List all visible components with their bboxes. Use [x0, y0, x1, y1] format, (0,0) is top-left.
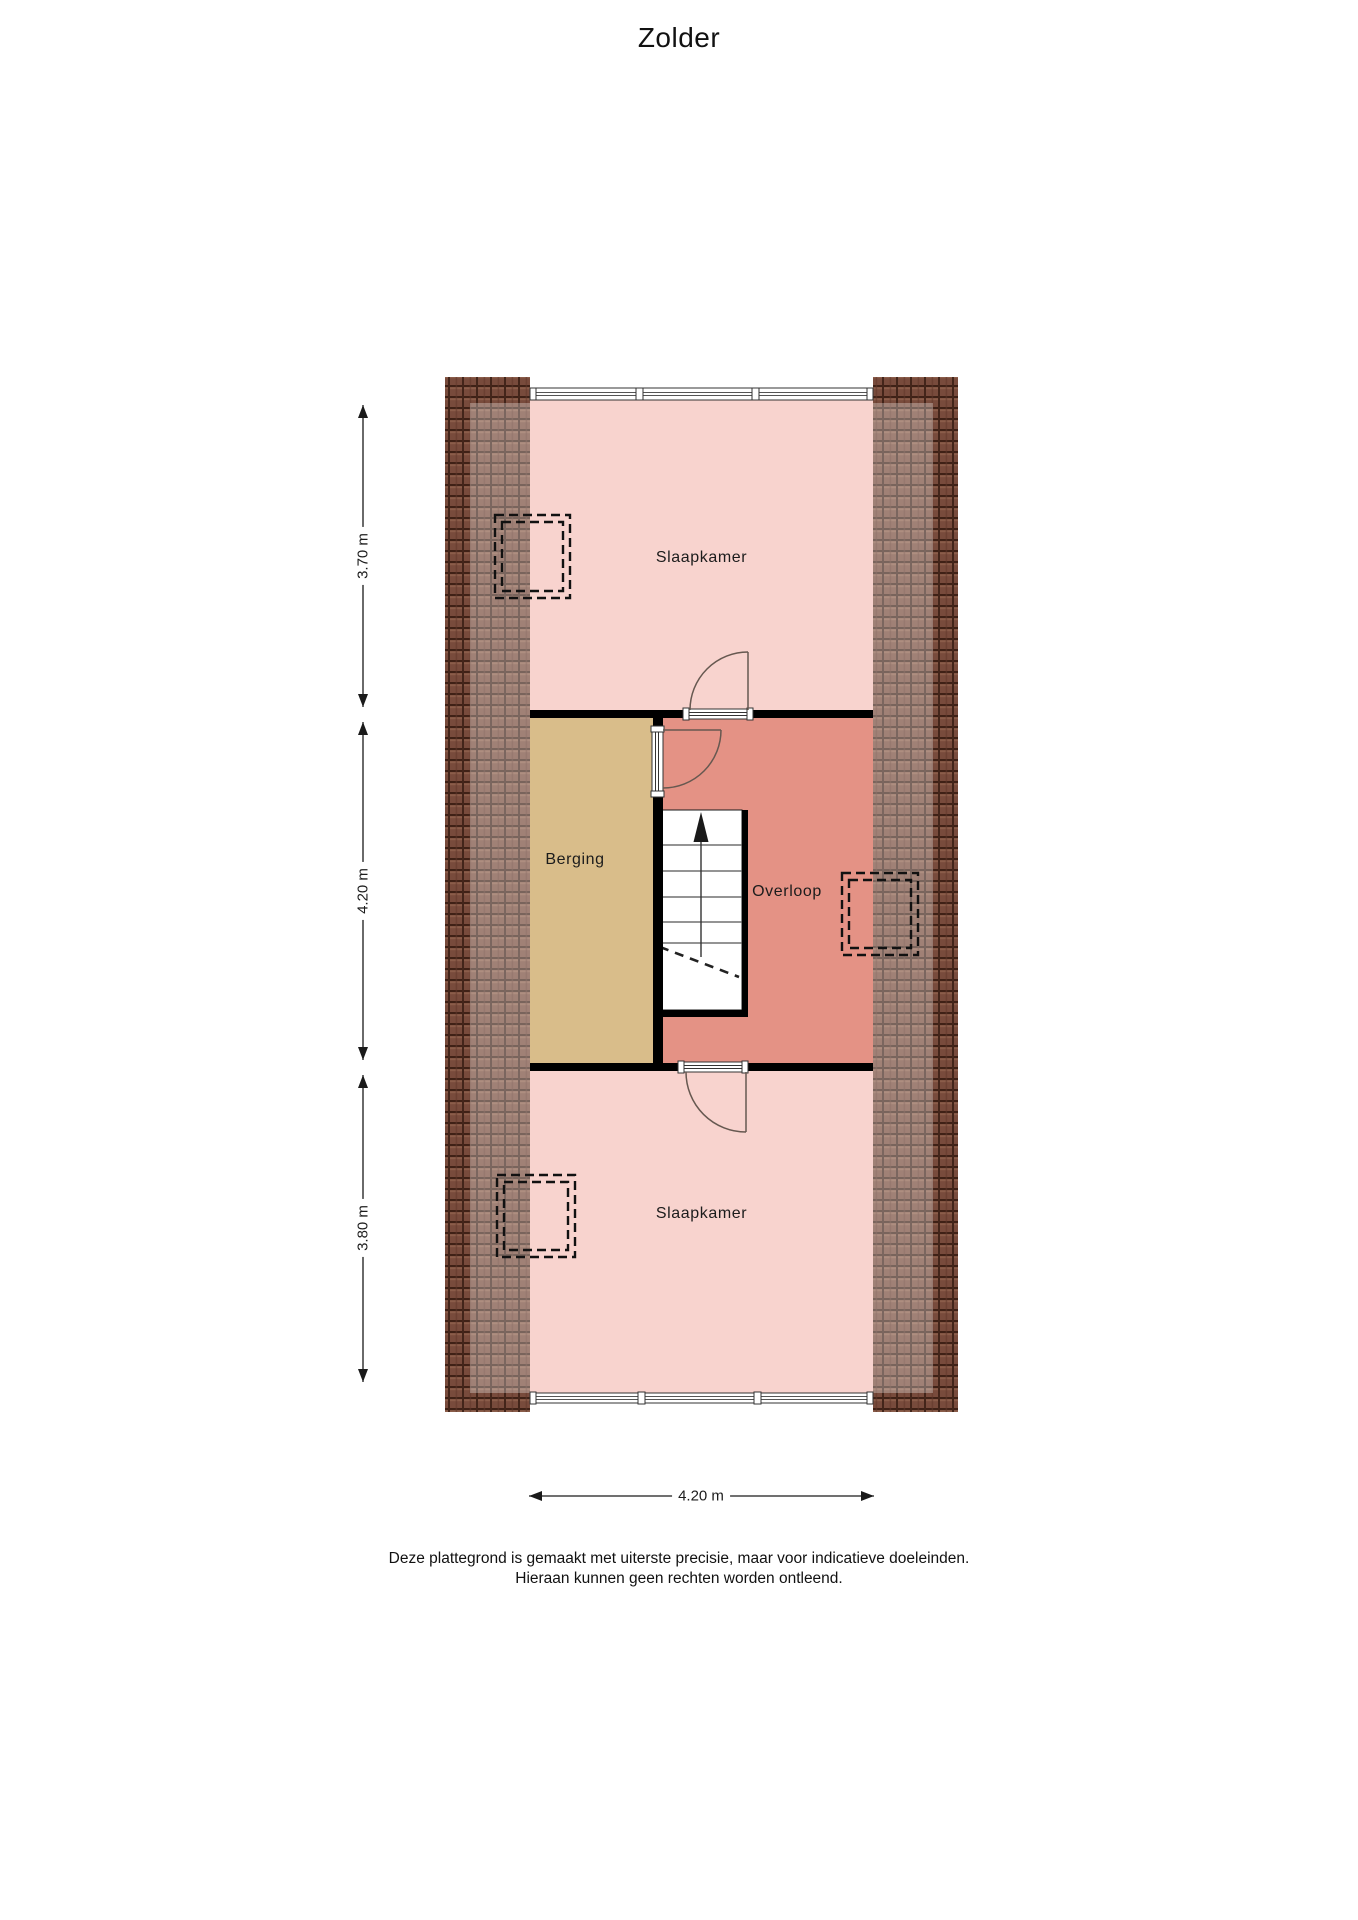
floorplan-page: Zolder Slaapkamer Berging Overloop Slaap…: [0, 0, 1358, 1920]
room-slaapkamer-bottom: [530, 1071, 873, 1393]
room-berging: [530, 718, 655, 1063]
room-label-slaapkamer-top: Slaapkamer: [530, 549, 873, 566]
room-label-overloop: Overloop: [682, 883, 892, 900]
disclaimer: Deze plattegrond is gemaakt met uiterste…: [0, 1549, 1358, 1589]
dimension-label-slaapkamer-top-depth: 3.70 m: [355, 527, 372, 585]
disclaimer-line-1: Deze plattegrond is gemaakt met uiterste…: [0, 1549, 1358, 1569]
room-label-slaapkamer-bottom: Slaapkamer: [530, 1205, 873, 1222]
window-top: [530, 388, 873, 400]
disclaimer-line-2: Hieraan kunnen geen rechten worden ontle…: [0, 1569, 1358, 1589]
dimension-label-plan-width: 4.20 m: [672, 1488, 730, 1505]
window-bottom: [530, 1392, 873, 1404]
room-label-berging: Berging: [470, 851, 680, 868]
floorplan-drawing: [0, 0, 1358, 1920]
page-title: Zolder: [0, 22, 1358, 54]
dimension-label-middle-depth: 4.20 m: [355, 862, 372, 920]
staircase: [660, 810, 742, 1010]
dimension-label-slaapkamer-bottom-depth: 3.80 m: [355, 1199, 372, 1257]
